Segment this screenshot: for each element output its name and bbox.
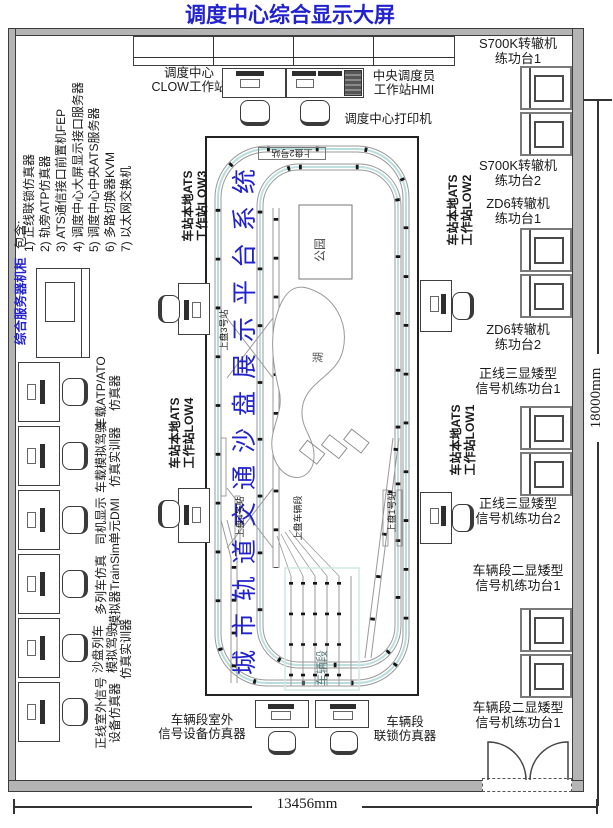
floor-plan-page: { "title": "调度中心综合显示大屏", "dimensions": {… <box>0 0 613 828</box>
screen-row-line <box>134 57 454 58</box>
printer-icon <box>344 70 362 96</box>
rack-item-5: 5) 调度中心中央ATS服务器 <box>87 82 103 252</box>
ats-low2-keyboard <box>430 296 439 312</box>
left-desk-4 <box>18 554 60 614</box>
dimension-tick-right-top <box>584 99 612 101</box>
left-monitor-4 <box>40 572 45 596</box>
platform-box-3b <box>520 452 572 496</box>
platform-box-2b <box>520 274 572 318</box>
platform-box-strip <box>529 114 531 154</box>
platform-box-inner <box>534 121 564 148</box>
platform-box-4a <box>520 608 572 652</box>
platform-box-2a <box>520 228 572 272</box>
depot-interlock-keyboard <box>333 711 353 720</box>
ats-low2-monitor <box>441 294 446 314</box>
server-rack-name: 综合服务器机柜 <box>14 257 28 345</box>
dimension-line-right <box>597 99 599 806</box>
screen-divider-3 <box>373 37 374 65</box>
dimension-height-label: 18000mm <box>589 354 605 442</box>
left-desk-5 <box>18 618 60 678</box>
left-monitor-3 <box>40 508 45 532</box>
platform-box-strip <box>529 656 531 696</box>
ats-low4-label: 车站本地ATS 工作站LOW4 <box>168 378 196 488</box>
sandtable-title: 城市轨道交通沙盘展示平台系统 <box>239 146 267 686</box>
platform-label-4: ZD6转辙机 练功台2 <box>466 322 570 352</box>
depot-label: 车辆段 <box>315 646 329 690</box>
left-chair-1 <box>62 378 88 406</box>
screen-divider-1 <box>213 37 214 65</box>
left-monitor-5 <box>40 636 45 660</box>
ats-low4-chair <box>158 500 180 528</box>
park-label: 公园 <box>313 235 327 265</box>
left-chair-4 <box>62 570 88 598</box>
platform-box-1b <box>520 112 572 156</box>
platform-box-strip <box>529 610 531 650</box>
platform-label-1: S700K转辙机 练功台1 <box>466 36 570 66</box>
platform-box-inner <box>534 663 564 690</box>
platform-box-4b <box>520 654 572 698</box>
rack-item-4: 4) 调度中心大屏显示接口服务器 <box>71 82 87 252</box>
platform-label-2: S700K转辙机 练功台2 <box>466 158 570 188</box>
depot-interlock-monitor <box>330 704 356 709</box>
rack-item-2: 2) 轨旁ATP仿真器 <box>38 82 54 252</box>
platform-box-strip <box>529 230 531 270</box>
display-wall-screen <box>133 36 455 66</box>
platform-label-5: 正线三显矮型 信号机练功台1 <box>466 366 570 396</box>
left-monitor-1 <box>40 380 45 404</box>
platform-label-8: 车辆段二显矮型 信号机练功台1 <box>466 700 570 730</box>
platform-box-inner <box>534 75 564 102</box>
ats-low1-keyboard <box>430 508 439 524</box>
dimension-width-label: 13456mm <box>252 797 362 811</box>
rack-item-7: 7) 以太网交换机 <box>119 82 135 252</box>
server-cabinet-divider <box>81 269 83 357</box>
platform-box-inner <box>534 617 564 644</box>
depot-outdoor-chair <box>268 731 296 755</box>
platform-label-7: 车辆段二显矮型 信号机练功台1 <box>466 563 570 593</box>
platform-box-inner <box>534 237 564 264</box>
rack-item-6: 6) 多路切换器KVM <box>103 82 119 252</box>
depot-outdoor-monitor <box>268 704 294 709</box>
screen-divider-2 <box>293 37 294 65</box>
platform-box-strip <box>529 68 531 108</box>
platform-box-strip <box>529 408 531 448</box>
depot-outdoor-label: 车辆段室外 信号设备仿真器 <box>152 713 252 741</box>
wall-left <box>8 28 16 792</box>
left-desk-2 <box>18 426 60 486</box>
wall-top <box>8 28 584 36</box>
ats-low3-chair <box>158 295 180 323</box>
depot-interlock-chair <box>330 731 358 755</box>
left-monitor-6 <box>40 700 45 724</box>
platform-label-6: 正线三显矮型 信号机练功台2 <box>466 496 570 526</box>
depot-interlock-label: 车辆段 联锁仿真器 <box>363 715 447 743</box>
platform-box-3a <box>520 406 572 450</box>
platform-box-inner <box>534 461 564 488</box>
left-chair-6 <box>62 698 88 726</box>
left-keyboard-4 <box>27 576 36 592</box>
ats-low1-monitor <box>441 506 446 526</box>
dimension-tick-bottom-left <box>13 799 15 814</box>
ats-low4-keyboard <box>192 507 201 523</box>
ats-low3-keyboard <box>192 302 201 318</box>
depot-station-label: 上盘车辆段 <box>291 494 301 542</box>
clow-monitor-icon <box>236 71 264 76</box>
left-monitor-2 <box>40 444 45 468</box>
left-keyboard-3 <box>27 512 36 528</box>
ats-low1-label: 车站本地ATS 工作站LOW1 <box>449 385 477 495</box>
depot-outdoor-keyboard <box>271 711 291 720</box>
ats-low4-monitor <box>184 505 189 525</box>
hmi-keyboard-icon <box>296 79 314 88</box>
ats-low2-chair <box>452 292 474 320</box>
rack-item-1: 1) 正线联锁仿真器 <box>22 82 38 252</box>
left-keyboard-2 <box>27 448 36 464</box>
left-chair-3 <box>62 506 88 534</box>
left-desk-1 <box>18 362 60 422</box>
left-desk-3 <box>18 490 60 550</box>
left-station-label-6: 正线室外信号 设备仿真器 <box>94 653 122 773</box>
station3-label: 上盘3号站 <box>217 306 227 354</box>
left-chair-2 <box>62 442 88 470</box>
printer-label: 调度中心打印机 <box>334 112 442 126</box>
ats-low3-monitor <box>184 300 189 320</box>
hmi-workstation-label: 中央调度员 工作站HMI <box>362 69 446 97</box>
door-icon <box>478 734 578 782</box>
station2-label: 上盘2号站 <box>258 147 326 160</box>
left-keyboard-1 <box>27 384 36 400</box>
platform-box-strip <box>529 454 531 494</box>
left-chair-5 <box>62 634 88 662</box>
left-desk-6 <box>18 682 60 742</box>
hmi-monitor-icon-1 <box>292 71 316 76</box>
station4-label: 上盘4号站 <box>233 493 243 541</box>
platform-box-inner <box>534 283 564 310</box>
platform-label-3: ZD6转辙机 练功台1 <box>466 196 570 226</box>
server-cabinet-door <box>45 282 75 322</box>
lake-label: 湖 <box>312 347 325 369</box>
platform-box-strip <box>529 276 531 316</box>
hmi-monitor-icon-2 <box>318 71 342 76</box>
server-cabinet <box>36 268 90 358</box>
ats-low3-label: 车站本地ATS 工作站LOW3 <box>181 151 209 261</box>
page-title: 调度中心综合显示大屏 <box>45 3 535 27</box>
hmi-chair-icon <box>300 100 330 126</box>
wall-right <box>572 28 584 792</box>
left-keyboard-5 <box>27 640 36 656</box>
rack-item-3: 3) ATS通信接口前置机FEP <box>54 82 70 252</box>
platform-box-inner <box>534 415 564 442</box>
clow-chair-icon <box>240 100 270 126</box>
platform-box-1a <box>520 66 572 110</box>
clow-keyboard-icon <box>240 79 260 88</box>
left-keyboard-6 <box>27 704 36 720</box>
station1-label: 上盘1号站 <box>385 488 395 536</box>
